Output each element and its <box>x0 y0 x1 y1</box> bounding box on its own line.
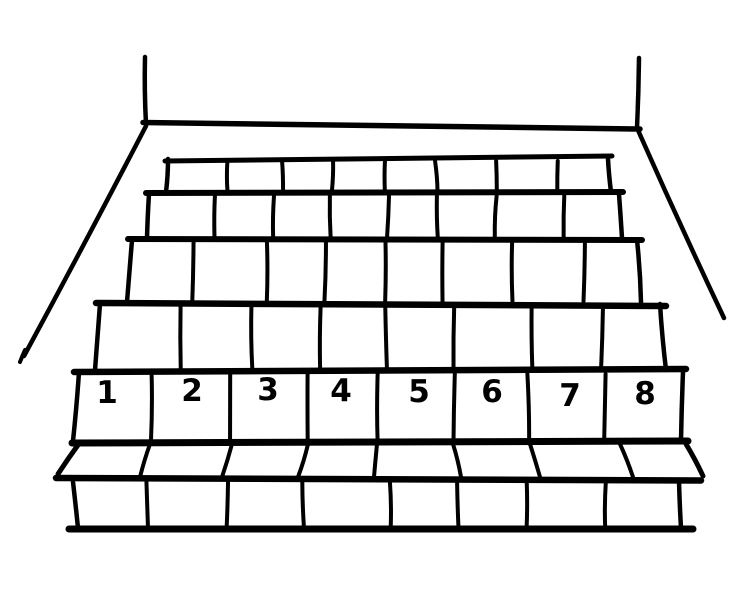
stairs-drawing: 1 2 3 4 5 6 7 8 <box>0 0 750 600</box>
base-row-divider <box>457 482 458 527</box>
step-number-5: 5 <box>408 374 430 410</box>
step-row-4-divider <box>495 196 497 237</box>
step-row-3-divider <box>267 242 268 301</box>
row-separator-line <box>128 239 642 240</box>
step-row-4-right-edge <box>619 194 622 238</box>
right-floor-edge-line <box>637 128 724 318</box>
step-row-2-divider <box>532 306 533 369</box>
step-number-3: 3 <box>257 372 279 408</box>
step-row-4-divider <box>437 196 438 237</box>
step-row-4-divider <box>387 196 389 237</box>
step-row-3-divider <box>324 242 325 301</box>
step-row-1-numbered-left-edge <box>73 372 79 441</box>
top-step-edge-line <box>165 156 612 161</box>
step-row-1-numbered-divider <box>151 374 152 440</box>
step-number-4: 4 <box>330 373 352 409</box>
step-row-4-divider <box>273 196 274 237</box>
tread-divider <box>140 444 150 477</box>
step-row-1-numbered-divider <box>604 374 605 440</box>
step-number-2: 2 <box>181 373 203 409</box>
tread-divider <box>374 444 377 477</box>
base-row-divider <box>146 482 148 527</box>
left-floor-edge-end-tick <box>20 350 25 362</box>
step-row-1-numbered-divider <box>377 374 378 440</box>
base-row-divider <box>302 482 304 527</box>
base-row-right-edge <box>679 481 681 528</box>
step-row-1-numbered-right-edge <box>681 372 683 441</box>
step-row-5-left-edge <box>166 159 168 192</box>
step-row-5-divider <box>227 161 228 191</box>
step-row-5-divider <box>282 161 283 191</box>
tread-divider <box>453 444 461 477</box>
step-row-2-divider <box>251 306 252 369</box>
base-row-left-edge <box>73 482 78 528</box>
tread-divider <box>298 444 308 477</box>
step-row-2-divider <box>601 306 603 369</box>
row-separator-line <box>74 369 686 372</box>
step-row-5-divider <box>435 161 437 191</box>
step-row-2-right-edge <box>660 304 666 370</box>
tread-divider <box>620 444 633 477</box>
base-row-divider <box>390 482 391 527</box>
step-row-5-right-edge <box>608 159 611 192</box>
step-row-4-divider <box>214 196 215 237</box>
step-row-4-divider <box>564 196 565 237</box>
step-row-2-divider <box>453 306 454 369</box>
step-row-3-divider <box>512 242 513 301</box>
tread-left-flare-edge <box>58 445 78 474</box>
left-wall-corner-line <box>145 57 146 124</box>
base-row-divider <box>605 482 606 527</box>
step-row-5-divider <box>332 161 333 191</box>
step-row-3-divider <box>385 242 386 301</box>
step-row-1-numbered-divider <box>527 374 529 440</box>
step-row-3-right-edge <box>637 240 641 302</box>
step-row-3-divider <box>584 242 585 301</box>
base-row-divider <box>227 482 228 527</box>
right-wall-corner-line <box>637 58 639 128</box>
row-separator-line <box>96 303 666 306</box>
stairs-illustration: 1 2 3 4 5 6 7 8 <box>0 0 750 600</box>
step-row-2-divider <box>385 306 387 369</box>
tread-front-edge-line <box>56 478 701 481</box>
step-number-6: 6 <box>481 374 503 410</box>
row-separator-line <box>72 441 688 443</box>
step-number-8: 8 <box>634 376 656 412</box>
step-row-3-divider <box>192 242 193 301</box>
tread-divider <box>222 444 232 477</box>
step-row-4-left-edge <box>147 194 149 238</box>
step-row-5-divider <box>496 161 497 191</box>
step-row-3-left-edge <box>127 240 132 302</box>
step-number-1: 1 <box>96 375 118 411</box>
step-row-2-divider <box>320 306 321 369</box>
tread-right-flare-edge <box>686 444 703 476</box>
step-row-1-numbered-divider <box>454 374 455 440</box>
back-wall-base-line <box>143 123 640 130</box>
step-row-4-divider <box>330 196 331 237</box>
step-row-2-left-edge <box>95 304 100 370</box>
stair-strokes <box>20 57 724 529</box>
tread-divider <box>530 444 540 477</box>
step-number-7: 7 <box>559 378 581 414</box>
row-separator-line <box>146 192 623 193</box>
